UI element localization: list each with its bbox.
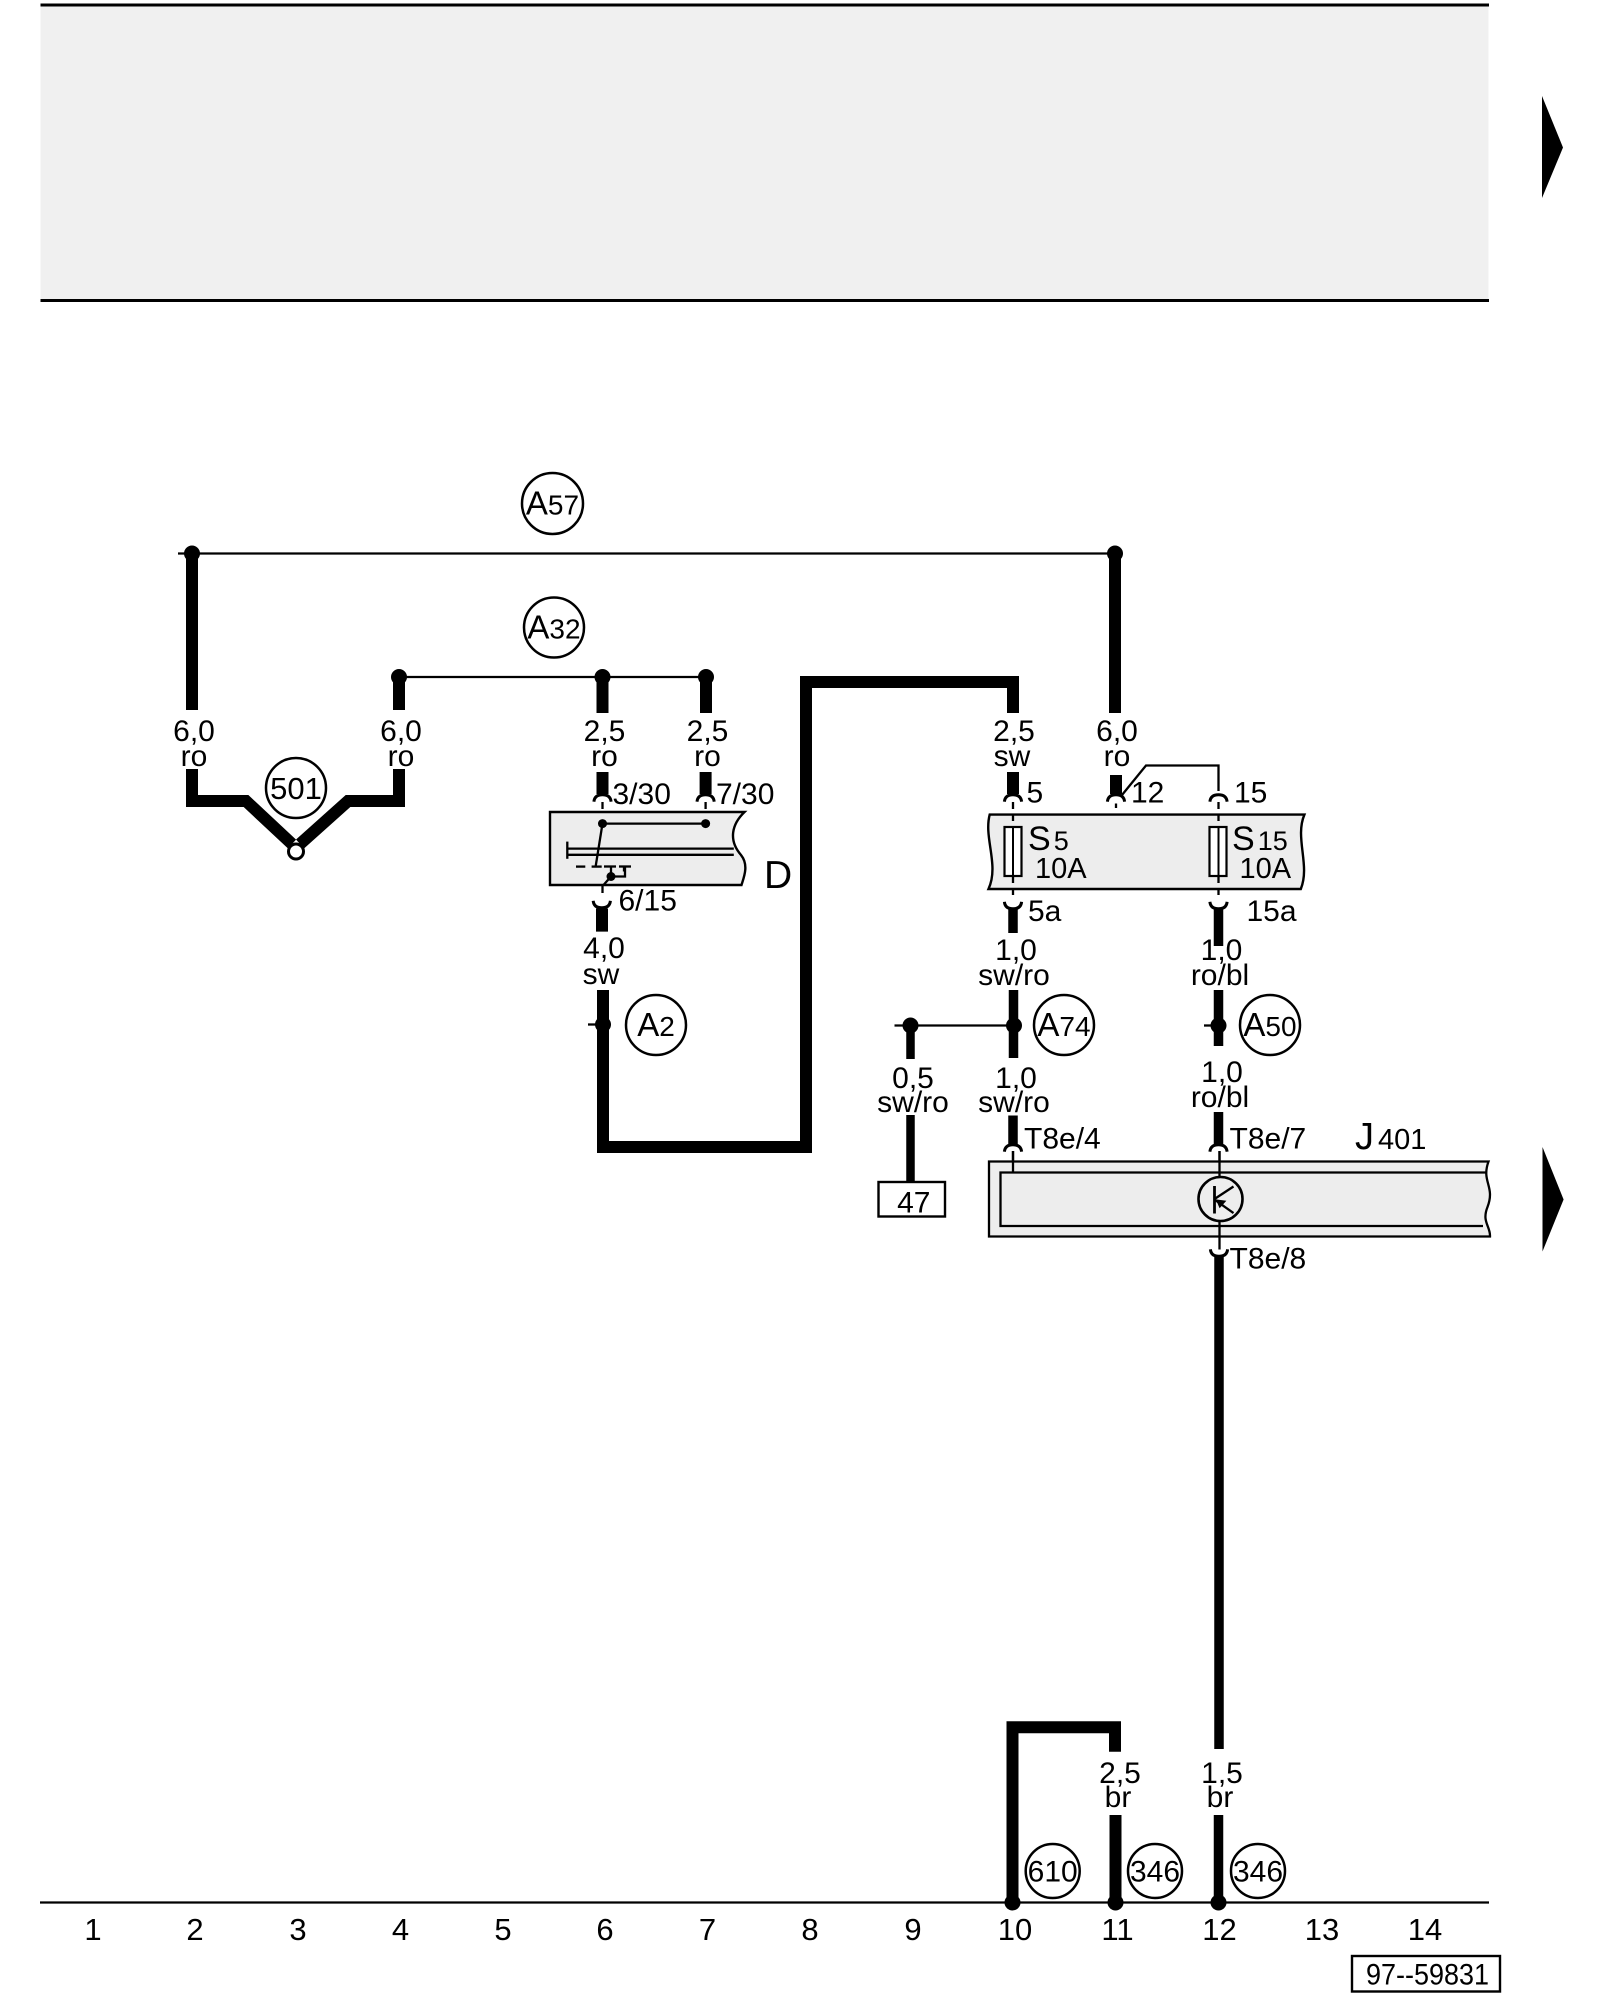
svg-text:7: 7: [699, 1912, 716, 1947]
svg-text:3: 3: [289, 1912, 306, 1947]
svg-text:97--59831: 97--59831: [1366, 1959, 1489, 1992]
svg-text:T8e/7: T8e/7: [1230, 1123, 1307, 1156]
svg-text:ro/bl: ro/bl: [1191, 1081, 1249, 1114]
svg-text:6: 6: [596, 1912, 613, 1947]
svg-text:T8e/4: T8e/4: [1024, 1123, 1101, 1156]
svg-text:ro: ro: [694, 740, 721, 773]
svg-text:ro: ro: [181, 740, 208, 773]
svg-text:5: 5: [494, 1912, 511, 1947]
svg-text:4: 4: [392, 1912, 409, 1947]
svg-text:15: 15: [1234, 777, 1267, 810]
svg-text:12: 12: [1131, 777, 1164, 810]
svg-text:10A: 10A: [1240, 853, 1292, 885]
svg-text:D: D: [764, 854, 792, 897]
svg-text:T8e/8: T8e/8: [1230, 1243, 1307, 1276]
svg-text:15a: 15a: [1247, 895, 1297, 928]
svg-text:11: 11: [1101, 1912, 1133, 1947]
svg-text:346: 346: [1233, 1856, 1283, 1889]
svg-text:ro/bl: ro/bl: [1191, 959, 1249, 992]
svg-text:sw/ro: sw/ro: [978, 959, 1050, 992]
svg-text:A50: A50: [1243, 1006, 1296, 1043]
svg-text:1: 1: [84, 1912, 101, 1947]
svg-text:3/30: 3/30: [613, 778, 671, 811]
svg-text:br: br: [1207, 1781, 1234, 1814]
svg-text:sw/ro: sw/ro: [978, 1086, 1050, 1119]
svg-text:8: 8: [801, 1912, 818, 1947]
svg-text:A57: A57: [526, 485, 579, 522]
svg-text:7/30: 7/30: [716, 778, 774, 811]
svg-text:610: 610: [1028, 1856, 1078, 1889]
svg-text:501: 501: [270, 771, 322, 806]
svg-text:A2: A2: [637, 1006, 675, 1043]
svg-text:47: 47: [897, 1187, 930, 1220]
svg-text:6/15: 6/15: [619, 885, 677, 918]
svg-text:sw: sw: [994, 740, 1031, 773]
svg-text:ro: ro: [591, 740, 618, 773]
svg-text:14: 14: [1408, 1912, 1442, 1947]
svg-text:sw/ro: sw/ro: [877, 1086, 949, 1119]
svg-text:ro: ro: [1104, 740, 1131, 773]
svg-text:A74: A74: [1037, 1006, 1090, 1043]
svg-text:sw: sw: [583, 958, 620, 991]
svg-text:9: 9: [904, 1912, 921, 1947]
svg-text:12: 12: [1202, 1912, 1236, 1947]
svg-text:346: 346: [1130, 1856, 1180, 1889]
svg-text:10: 10: [998, 1912, 1032, 1947]
svg-text:2: 2: [186, 1912, 203, 1947]
svg-text:A32: A32: [527, 609, 580, 646]
svg-text:5: 5: [1027, 777, 1044, 810]
svg-text:10A: 10A: [1035, 853, 1087, 885]
svg-text:br: br: [1105, 1781, 1132, 1814]
svg-text:ro: ro: [388, 740, 415, 773]
svg-text:13: 13: [1305, 1912, 1339, 1947]
svg-text:5a: 5a: [1028, 895, 1062, 928]
